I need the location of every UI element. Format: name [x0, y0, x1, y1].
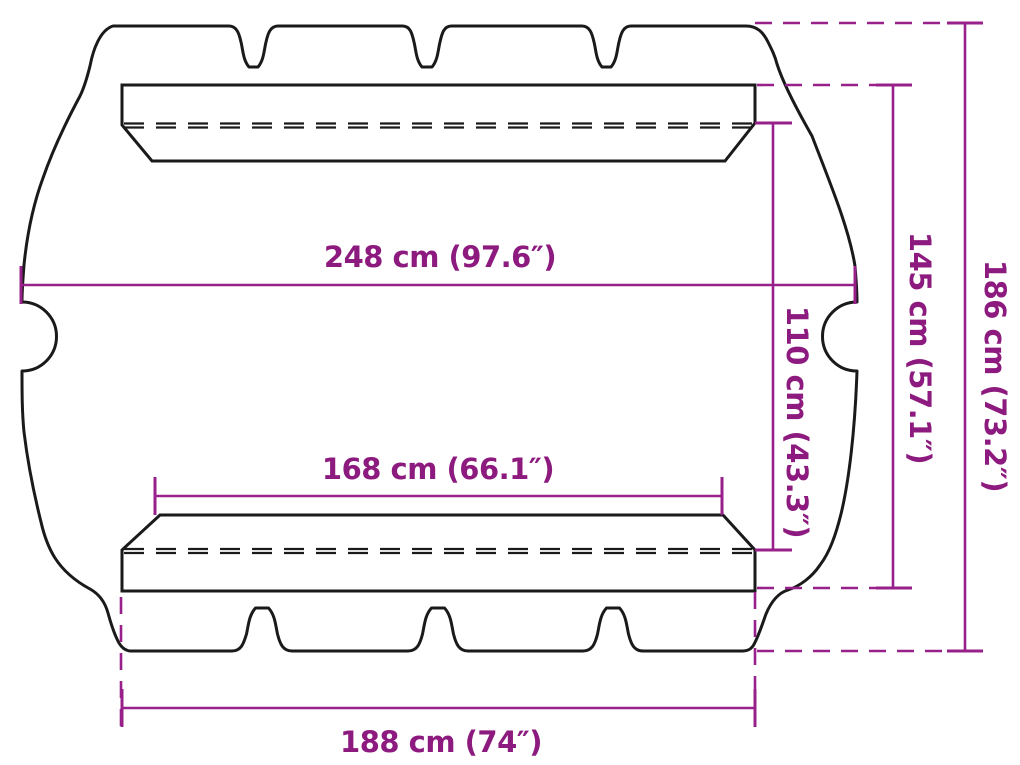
dimension-label-outer-height: 186 cm (73.2″): [978, 260, 1012, 492]
diagram-canvas: [0, 0, 1020, 765]
dimension-label-bottom-width: 188 cm (74″): [340, 725, 542, 759]
dimension-label-mid-width: 168 cm (66.1″): [322, 452, 554, 486]
top-bar-outline: [122, 85, 755, 161]
top-bar-panel: [122, 85, 755, 161]
canopy-dimension-diagram: 248 cm (97.6″) 168 cm (66.1″) 188 cm (74…: [0, 0, 1020, 765]
dimension-label-top-width: 248 cm (97.6″): [324, 240, 556, 274]
bottom-bar-panel: [122, 515, 755, 591]
dimension-label-mid-height: 145 cm (57.1″): [903, 232, 937, 464]
dimension-line-188: [122, 689, 755, 727]
bottom-bar-outline: [122, 515, 755, 591]
dimension-label-inner-height: 110 cm (43.3″): [780, 306, 814, 538]
